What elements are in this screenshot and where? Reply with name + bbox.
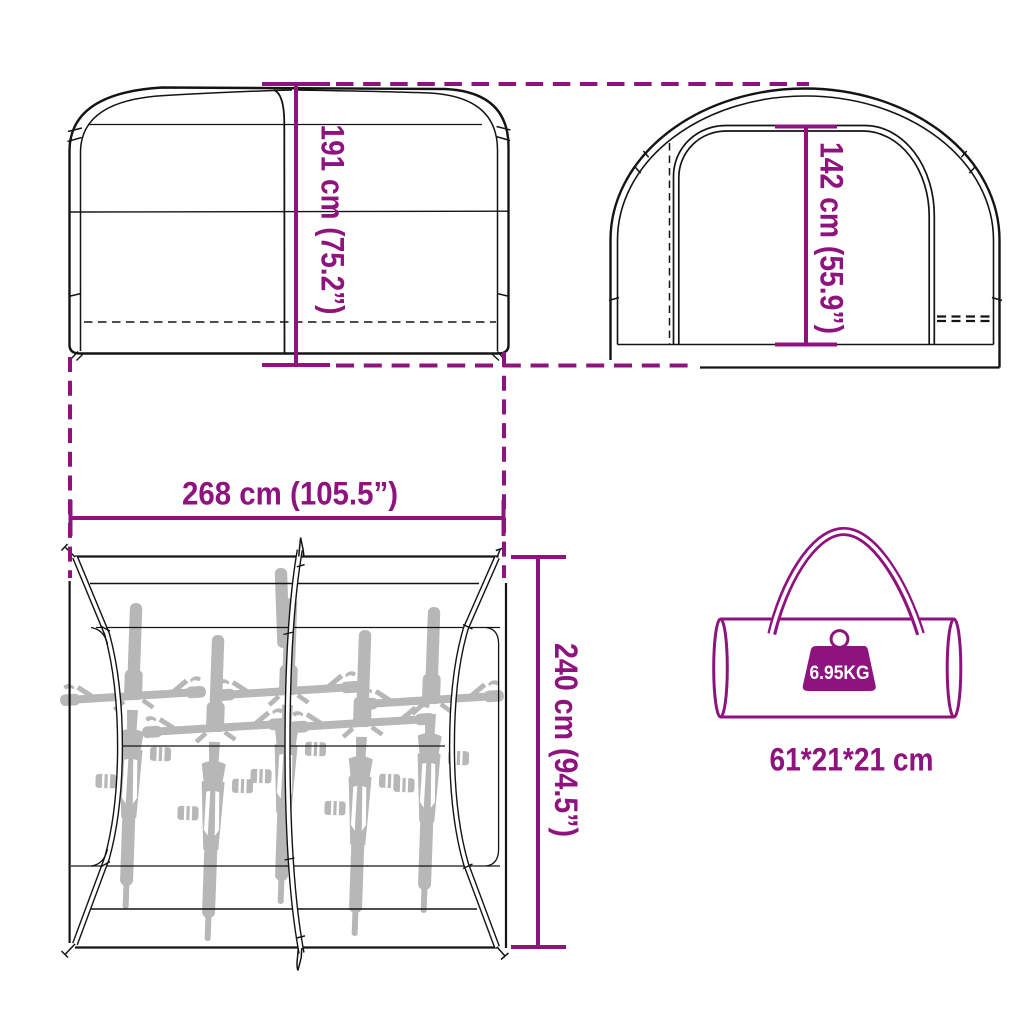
svg-text:191 cm (75.2”): 191 cm (75.2”) [315, 125, 351, 315]
svg-text:268 cm (105.5”): 268 cm (105.5”) [182, 476, 398, 512]
svg-text:142 cm (55.9”): 142 cm (55.9”) [814, 142, 850, 334]
svg-text:240 cm (94.5”): 240 cm (94.5”) [548, 643, 584, 837]
svg-text:6.95KG: 6.95KG [810, 662, 870, 684]
svg-text:61*21*21 cm: 61*21*21 cm [770, 742, 934, 778]
